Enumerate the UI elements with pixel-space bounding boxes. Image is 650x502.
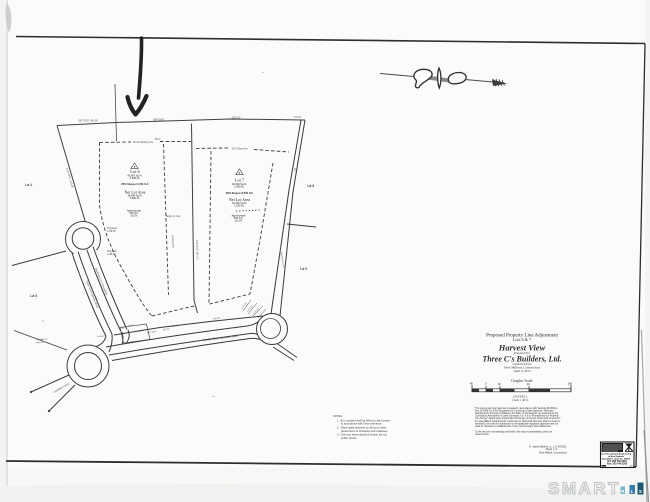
svg-text:±0.1%: ±0.1% (235, 220, 243, 223)
svg-text:M: M (621, 490, 624, 494)
svg-text:Lot 6: Lot 6 (130, 169, 140, 174)
svg-text:This survey and map has been p: This survey and map has been prepared in… (475, 407, 558, 410)
svg-text:200.00': 200.00' (232, 116, 241, 120)
svg-text:S: S (639, 489, 642, 494)
svg-text:existing line: existing line (171, 235, 174, 249)
svg-text:preservation of driveways and: preservation of driveways and roadways. (341, 429, 388, 433)
svg-text:Lot 9: Lot 9 (300, 267, 307, 271)
svg-text:50.0': 50.0' (155, 138, 161, 141)
svg-text:(typical): (typical) (36, 341, 44, 344)
svg-text:Lot 8: Lot 8 (307, 184, 314, 188)
svg-text:Lot 7: Lot 7 (235, 178, 245, 183)
svg-text:intended to be used for submis: intended to be used for submission to th… (475, 422, 558, 425)
svg-text:used for transfers or establis: used for transfers or establishment of a… (475, 425, 552, 428)
svg-text:S89°56'E: S89°56'E (153, 118, 164, 122)
svg-text:0.918 Ac.: 0.918 Ac. (130, 177, 141, 180)
svg-text:Begin st. line: Begin st. line (166, 215, 181, 218)
svg-text:L=68.08': L=68.08' (107, 231, 116, 233)
svg-text:0.894 Ac.: 0.894 Ac. (130, 197, 141, 200)
svg-text:1 inch = 40 ft.: 1 inch = 40 ft. (512, 398, 529, 402)
svg-text:thru 20-300b-20 of the Regulat: thru 20-300b-20 of the Regulations of Co… (475, 409, 554, 412)
svg-text:Lot 4: Lot 4 (25, 183, 32, 187)
svg-text:Proposed: Proposed (107, 227, 118, 230)
svg-text:SMART: SMART (548, 479, 621, 498)
svg-text:L: L (631, 489, 634, 494)
svg-text:New Milford, Connecticut: New Milford, Connecticut (539, 452, 567, 455)
svg-text:40.00 building line: 40.00 building line (133, 141, 154, 144)
svg-text:Lot 5: Lot 5 (30, 294, 37, 298)
svg-text:Connecticut Association of Lan: Connecticut Association of Land Surveyor… (475, 415, 559, 418)
svg-text:Line Survey" based upon a Depe: Line Survey" based upon a Dependent Resu… (475, 417, 561, 420)
svg-text:160: 160 (568, 383, 573, 386)
svg-text:57.03': 57.03' (294, 115, 302, 119)
svg-text:50' RADIUS: 50' RADIUS (36, 338, 48, 341)
svg-text:40.0 Slope line: 40.0 Slope line (232, 148, 248, 151)
svg-text:Standards for Surveys and Maps: Standards for Surveys and Maps in the St… (475, 412, 559, 415)
svg-text:in accordance with Town ordina: in accordance with Town ordinance. (341, 422, 382, 426)
svg-text:Lots 6 & 7: Lots 6 & 7 (513, 337, 532, 342)
svg-text:the New Milford Land Records c: the New Milford Land Records conforming … (475, 420, 561, 423)
svg-text:Fax: 203 740-2293: Fax: 203 740-2293 (607, 462, 628, 465)
svg-text:25% Slopes=2,550 S.F.: 25% Slopes=2,550 S.F. (226, 191, 254, 195)
svg-text:S05°54'E 180.00': S05°54'E 180.00' (195, 240, 200, 261)
svg-text:NOTES:: NOTES: (333, 414, 343, 418)
svg-text:Graphic Scale: Graphic Scale (511, 379, 533, 383)
svg-text:To the best of my knowledge an: To the best of my knowledge and belief, … (475, 430, 553, 433)
svg-text:L=48.02': L=48.02' (107, 254, 116, 256)
svg-text:45.13: 45.13 (630, 466, 635, 468)
svg-text:L=48.27': L=48.27' (97, 336, 106, 338)
svg-text:public streets.: public streets. (341, 436, 357, 440)
svg-text:Required: Required (107, 250, 117, 253)
svg-text:noted hereon.: noted hereon. (475, 433, 490, 436)
svg-text:25% Slopes=1,051 S.F.: 25% Slopes=1,051 S.F. (121, 182, 149, 186)
svg-text:1.035 Ac.: 1.035 Ac. (234, 205, 245, 208)
svg-text:±0.1%: ±0.1% (130, 215, 138, 218)
svg-text:1.050 Ac.: 1.050 Ac. (234, 186, 245, 189)
svg-text:S87°02'E 88.56': S87°02'E 88.56' (78, 119, 98, 123)
